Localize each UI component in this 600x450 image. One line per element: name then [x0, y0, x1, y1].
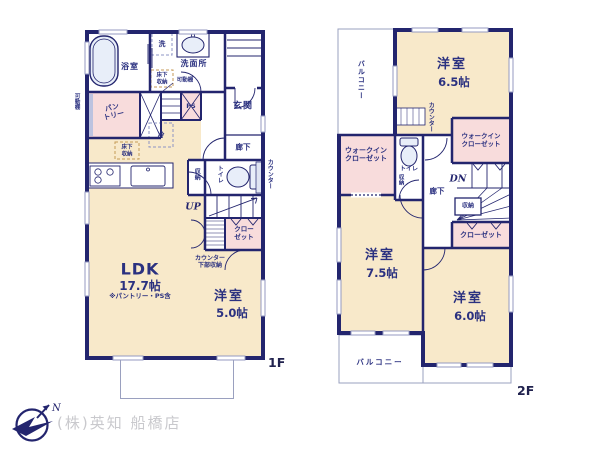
label-underfloor-kitchen: 床下 収納 [121, 144, 132, 157]
label-balcony-top: バルコニー [357, 60, 365, 100]
label-bedroom65-size: 6.5帖 [438, 76, 470, 90]
label-toilet-1f: トイレ [216, 165, 223, 183]
label-washroom: 洗面所 [181, 59, 208, 69]
label-toilet-storage: 収納 [397, 174, 404, 185]
label-ldk-note: ※パントリー・PS含 [109, 293, 171, 301]
label-bedroom60: 洋室 [453, 291, 483, 307]
label-movable-shelf-mid: 可動棚 [177, 78, 194, 85]
floor-1-plan: 浴室 洗 洗面所 床下 収納 可動棚 可動棚 パン トリー PS 冷 床下 収納… [85, 30, 265, 360]
bathtub-icon [90, 36, 118, 86]
floor-2-tag: 2F [517, 383, 534, 398]
label-stairs-storage: 収納 [462, 202, 474, 209]
toilet-icon-2f [400, 138, 418, 166]
label-wic-left: ウォークイン クローゼット [345, 147, 387, 164]
label-counter-1f: カウンター [266, 159, 273, 189]
room-genkan-hall [201, 88, 263, 160]
label-bedroom75-size: 7.5帖 [366, 267, 398, 281]
label-ps: PS [186, 103, 195, 111]
label-up: UP [185, 201, 200, 212]
room-wic-left [339, 135, 395, 195]
label-hall-2f: 廊下 [430, 187, 445, 196]
label-bedroom65: 洋室 [437, 57, 467, 73]
label-closet-1f: クロー ゼット [234, 226, 254, 242]
balcony-top-outline [338, 29, 395, 135]
floorplan-canvas: 浴室 洗 洗面所 床下 収納 可動棚 可動棚 パン トリー PS 冷 床下 収納… [0, 0, 600, 450]
label-bedroom5-size: 5.0帖 [216, 307, 248, 321]
label-bedroom75: 洋室 [365, 248, 395, 264]
wic-left-opening [351, 193, 381, 198]
label-bedroom5: 洋室 [214, 289, 244, 305]
label-closet-2f: クローゼット [460, 231, 502, 239]
kitchen-sink-icon [131, 166, 165, 186]
label-movable-shelf-left: 可動棚 [73, 93, 80, 110]
washbasin-icon [177, 32, 209, 57]
label-hall-1f: 廊下 [236, 143, 251, 152]
label-bath: 浴室 [121, 62, 139, 72]
label-balcony-bottom: バルコニー [356, 358, 403, 367]
balcony-bottom-extension [423, 365, 511, 383]
label-counter-storage: カウンター 下部収納 [195, 255, 225, 269]
label-ldk-size: 17.7帖 [119, 279, 161, 293]
label-storage-1f: 収納 [193, 168, 200, 180]
label-bedroom60-size: 6.0帖 [454, 310, 486, 324]
label-fridge: 冷 [158, 131, 165, 139]
company-name: (株)英知 船橋店 [57, 412, 181, 433]
label-genkan: 玄関 [233, 102, 253, 113]
label-ldk: LDK [121, 259, 160, 278]
floor-1-tag: 1F [268, 355, 285, 370]
label-underfloor-washroom: 床下 収納 [156, 72, 167, 85]
counter-2f-hatch [395, 108, 425, 125]
label-dn: DN [450, 173, 467, 184]
label-wic-right: ウォークイン クローゼット [462, 133, 501, 149]
label-counter-2f: カウンター [427, 102, 434, 132]
label-toilet-2f: トイレ [400, 165, 418, 172]
label-washer: 洗 [159, 40, 166, 48]
room-bedroom-75 [339, 195, 423, 333]
entrance-porch-outline [120, 360, 234, 399]
floor-2-plan: バルコニー 洋室 6.5帖 カウンター ウォークイン クローゼット トイレ 収納… [337, 28, 513, 388]
